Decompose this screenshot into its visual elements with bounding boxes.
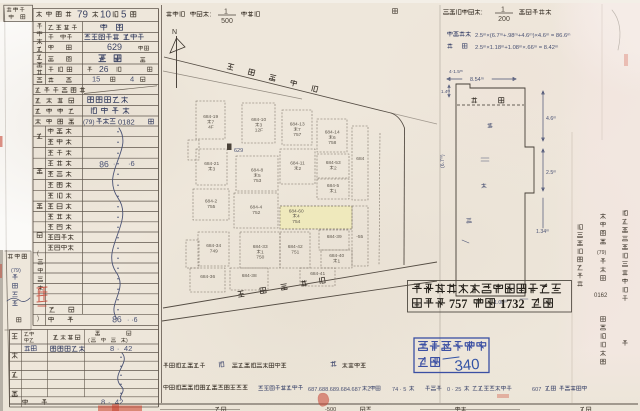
svg-text:•: • bbox=[117, 297, 119, 303]
svg-text:629: 629 bbox=[234, 148, 243, 154]
svg-text:684-38: 684-38 bbox=[242, 273, 257, 279]
svg-text:4.6ᵐ: 4.6ᵐ bbox=[546, 116, 556, 122]
svg-text:7: 7 bbox=[298, 127, 301, 133]
svg-text:N: N bbox=[172, 29, 177, 36]
svg-text:•: • bbox=[117, 183, 119, 189]
svg-text::: : bbox=[481, 10, 483, 17]
svg-text:(: ( bbox=[37, 251, 39, 257]
svg-text:•: • bbox=[117, 129, 119, 135]
svg-text:4·1.5ᵐ: 4·1.5ᵐ bbox=[449, 69, 463, 75]
svg-text:684-34: 684-34 bbox=[206, 243, 221, 249]
svg-text:· ·6: · ·6 bbox=[127, 317, 138, 324]
svg-text:684-40: 684-40 bbox=[329, 253, 344, 259]
svg-text:757: 757 bbox=[293, 132, 301, 138]
svg-text:12F: 12F bbox=[255, 128, 263, 134]
svg-text::: : bbox=[209, 12, 211, 19]
svg-text:•: • bbox=[117, 308, 119, 314]
svg-text:8.54ᵐ: 8.54ᵐ bbox=[470, 77, 484, 83]
svg-text:1: 1 bbox=[334, 188, 337, 194]
svg-text:754: 754 bbox=[292, 219, 300, 225]
svg-text:684-8: 684-8 bbox=[251, 168, 264, 174]
svg-text:684-42: 684-42 bbox=[288, 244, 303, 250]
svg-text:751: 751 bbox=[291, 249, 299, 255]
svg-text:500: 500 bbox=[221, 18, 233, 25]
svg-text:8: 8 bbox=[110, 344, 114, 353]
svg-text:(79): (79) bbox=[597, 250, 606, 256]
svg-text:•: • bbox=[120, 364, 122, 370]
svg-text:200: 200 bbox=[498, 16, 510, 23]
svg-text:79: 79 bbox=[77, 9, 88, 20]
svg-text:1: 1 bbox=[261, 249, 264, 255]
svg-text:684: 684 bbox=[356, 156, 364, 162]
svg-text:10: 10 bbox=[100, 9, 111, 20]
svg-text:684-41: 684-41 bbox=[310, 271, 325, 277]
svg-text:•: • bbox=[120, 355, 122, 361]
svg-text:755: 755 bbox=[207, 204, 215, 210]
svg-text:684-5: 684-5 bbox=[327, 183, 340, 189]
svg-text:5: 5 bbox=[258, 173, 261, 179]
svg-text:340: 340 bbox=[454, 356, 480, 375]
svg-text:1: 1 bbox=[224, 9, 228, 16]
svg-text:86: 86 bbox=[112, 314, 122, 324]
svg-text:·: · bbox=[108, 398, 111, 407]
svg-text:•: • bbox=[117, 266, 119, 272]
svg-text:7: 7 bbox=[212, 119, 215, 125]
svg-text:•: • bbox=[117, 246, 119, 252]
svg-text:•: • bbox=[117, 140, 119, 146]
svg-text:684-4: 684-4 bbox=[250, 205, 263, 211]
svg-text:757: 757 bbox=[449, 297, 467, 311]
svg-text:684-19: 684-19 bbox=[203, 114, 218, 120]
svg-text:2: 2 bbox=[334, 165, 337, 171]
svg-text:(79): (79) bbox=[83, 119, 95, 126]
svg-text:752: 752 bbox=[252, 210, 260, 216]
svg-text:684-10: 684-10 bbox=[251, 117, 266, 123]
svg-text:607: 607 bbox=[532, 387, 541, 393]
svg-text:·6: ·6 bbox=[128, 159, 135, 168]
svg-text:26: 26 bbox=[99, 64, 109, 74]
svg-text:2.5ᵐ×(6.7ᵐ+.98ᵐ+4.6ᵐ)×4.6ᵐ = 8: 2.5ᵐ×(6.7ᵐ+.98ᵐ+4.6ᵐ)×4.6ᵐ = 86.6ᵐ bbox=[475, 33, 571, 39]
svg-text:0162: 0162 bbox=[594, 293, 608, 299]
svg-text:15: 15 bbox=[92, 75, 100, 84]
svg-text:74 · 5: 74 · 5 bbox=[392, 387, 406, 393]
svg-text:0 · 25: 0 · 25 bbox=[447, 387, 461, 393]
svg-text:684-13: 684-13 bbox=[290, 122, 305, 128]
svg-text:•: • bbox=[117, 172, 119, 178]
svg-text:·: · bbox=[113, 161, 115, 168]
svg-text:3: 3 bbox=[260, 122, 263, 128]
svg-text:6: 6 bbox=[333, 135, 336, 141]
svg-text:684-53: 684-53 bbox=[326, 160, 341, 166]
svg-text:758: 758 bbox=[328, 140, 336, 146]
svg-text:5: 5 bbox=[121, 9, 127, 20]
svg-text:•: • bbox=[120, 373, 122, 379]
svg-text:1: 1 bbox=[501, 7, 505, 14]
svg-text:684-33: 684-33 bbox=[253, 244, 268, 250]
svg-text:8: 8 bbox=[101, 398, 105, 407]
svg-text:684-36: 684-36 bbox=[200, 274, 215, 280]
svg-text:•: • bbox=[120, 382, 122, 388]
svg-text:1: 1 bbox=[338, 258, 341, 264]
svg-text:687.688.689.684.687: 687.688.689.684.687 bbox=[308, 387, 361, 393]
svg-text:749: 749 bbox=[210, 248, 218, 254]
svg-text:4F: 4F bbox=[208, 125, 214, 131]
svg-text:•: • bbox=[117, 215, 119, 221]
svg-text:•: • bbox=[117, 205, 119, 211]
svg-text:684-11: 684-11 bbox=[290, 161, 305, 167]
svg-text:86: 86 bbox=[99, 159, 109, 169]
svg-text:·: · bbox=[117, 344, 120, 353]
svg-text:(: ( bbox=[88, 338, 90, 344]
svg-text:-55: -55 bbox=[356, 234, 363, 240]
svg-text:3: 3 bbox=[213, 166, 216, 172]
svg-text:•: • bbox=[120, 391, 122, 397]
svg-text:684-39: 684-39 bbox=[327, 234, 342, 240]
svg-text:(79): (79) bbox=[11, 268, 21, 274]
svg-text:1732: 1732 bbox=[500, 297, 525, 311]
svg-text:42: 42 bbox=[124, 344, 132, 353]
svg-text:0182: 0182 bbox=[118, 118, 135, 127]
svg-text:2: 2 bbox=[299, 166, 302, 172]
svg-text:684-14: 684-14 bbox=[325, 130, 340, 136]
svg-text:4: 4 bbox=[130, 75, 134, 84]
svg-text:684-2: 684-2 bbox=[205, 199, 218, 205]
svg-text:4: 4 bbox=[297, 213, 300, 219]
svg-text:•: • bbox=[117, 256, 119, 262]
svg-text:750: 750 bbox=[256, 255, 264, 261]
svg-text:•: • bbox=[117, 151, 119, 157]
svg-text:753: 753 bbox=[253, 178, 261, 184]
svg-text:): ) bbox=[37, 316, 39, 322]
svg-text:1.34ᵐ: 1.34ᵐ bbox=[536, 229, 549, 235]
svg-text:684-21: 684-21 bbox=[204, 161, 219, 167]
svg-text:-500: -500 bbox=[325, 407, 336, 411]
svg-text:629: 629 bbox=[107, 42, 122, 52]
svg-text:(6.7ᵐ): (6.7ᵐ) bbox=[440, 154, 446, 168]
svg-text:2.5ᵐ×1.18ᵐ+1.08ᵐ×.66ᵐ = 8.42ᵐ: 2.5ᵐ×1.18ᵐ+1.08ᵐ×.66ᵐ = 8.42ᵐ bbox=[475, 45, 559, 51]
svg-text:2.5ᵐ: 2.5ᵐ bbox=[546, 170, 556, 176]
